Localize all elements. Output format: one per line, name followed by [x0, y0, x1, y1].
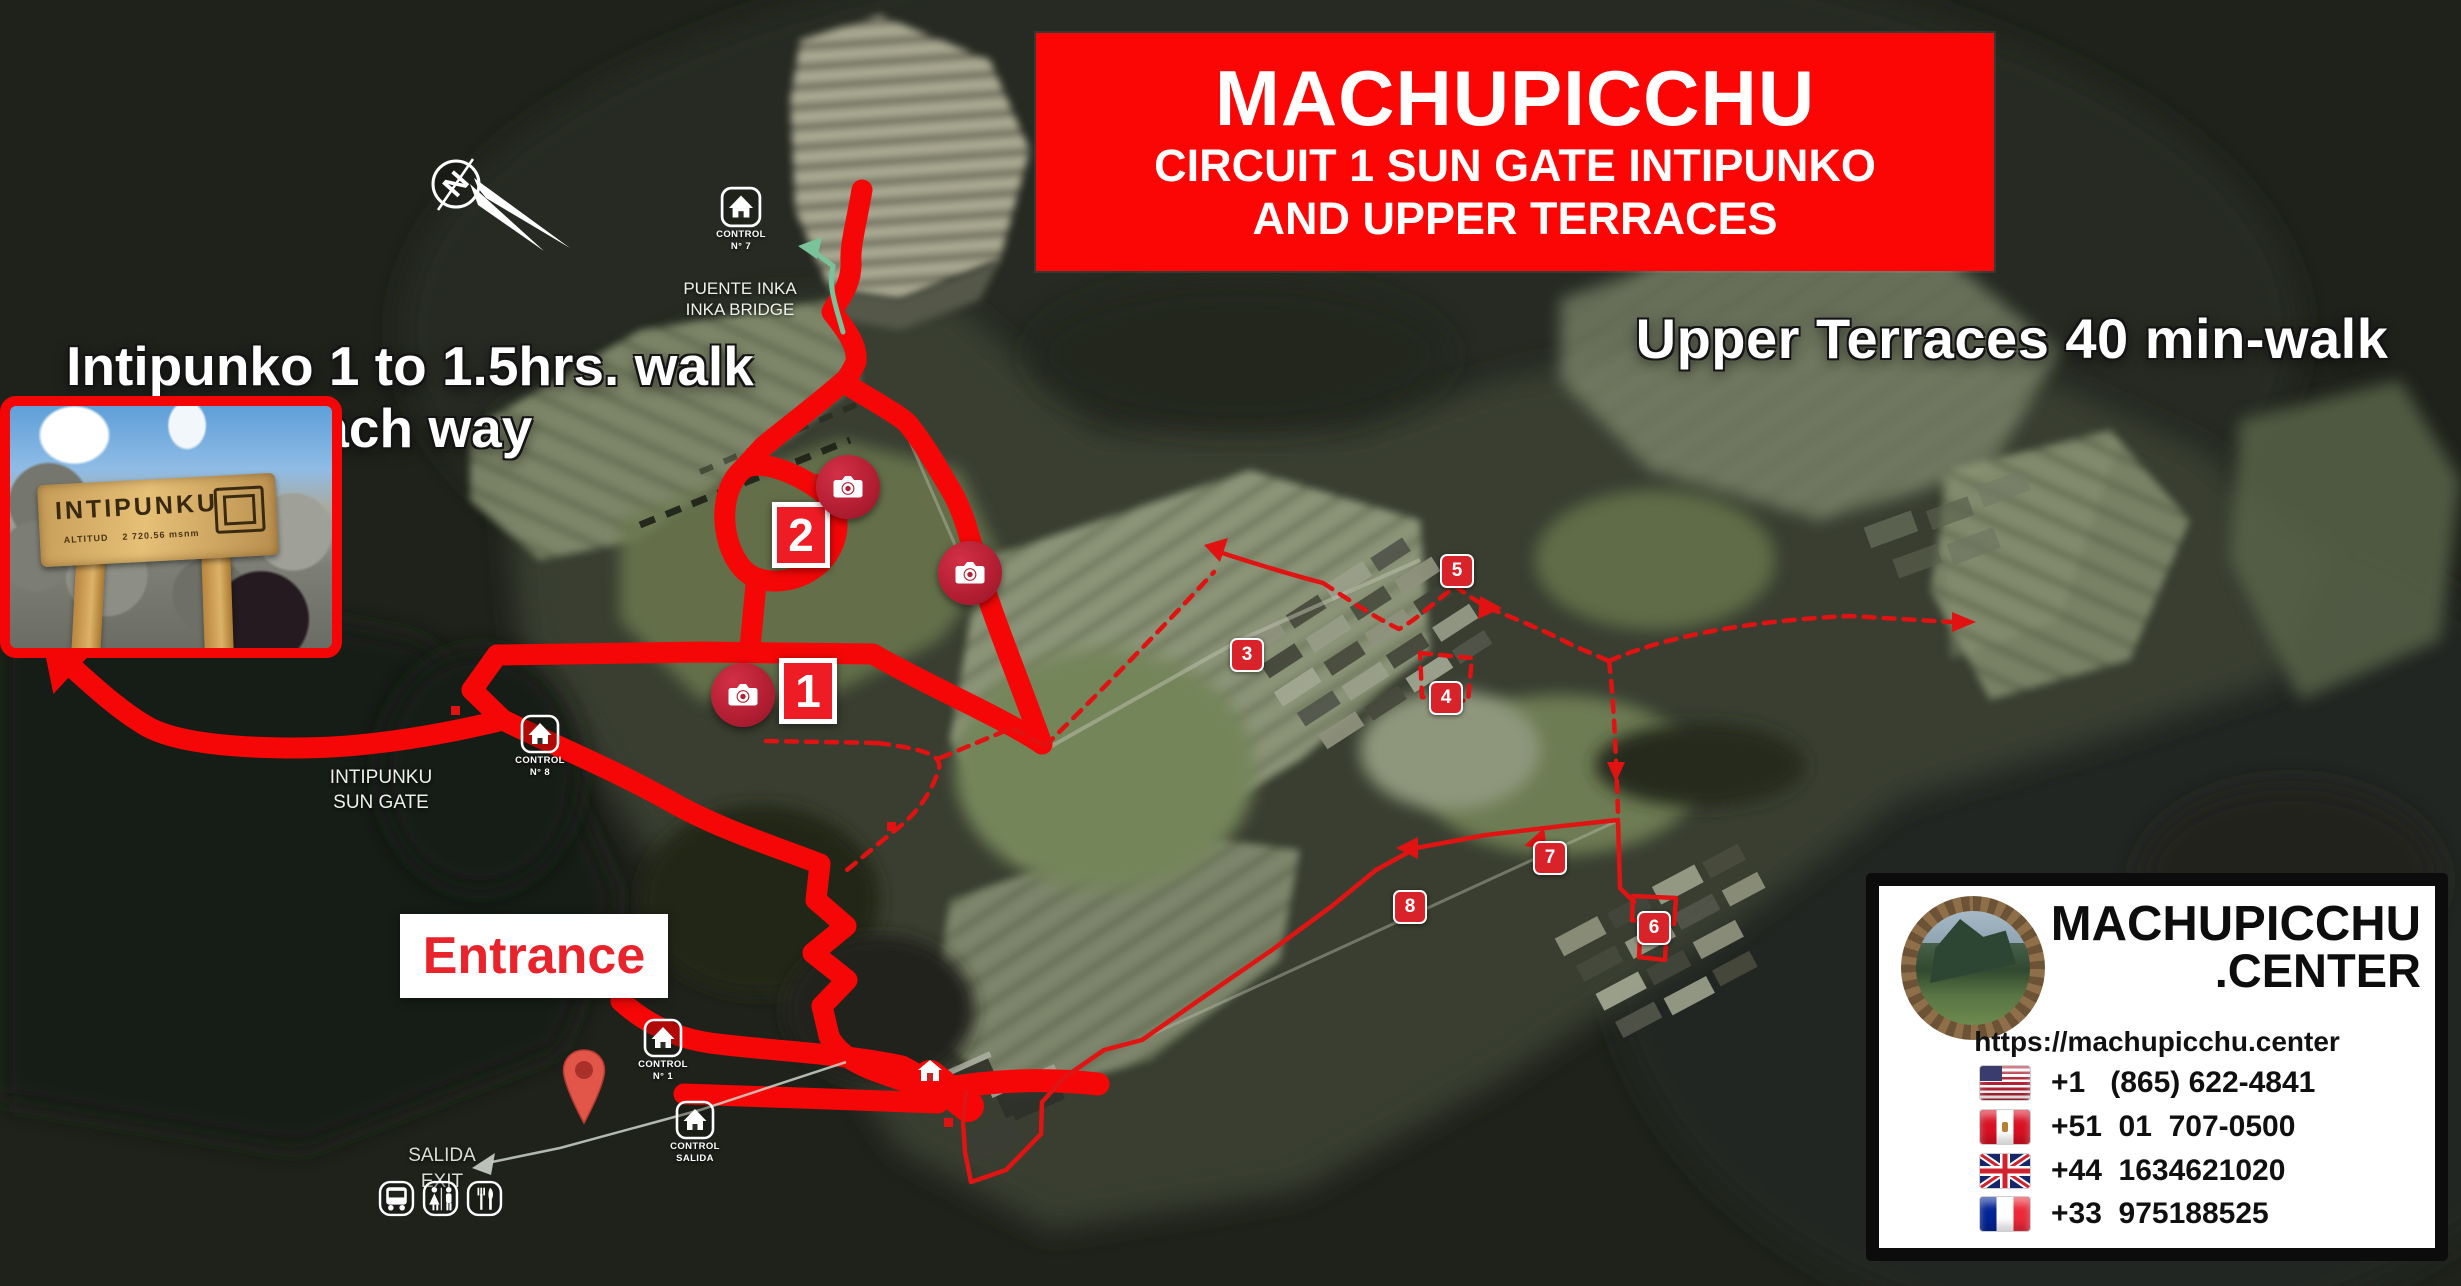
circuit-upper-entry	[1216, 551, 1323, 583]
control-label: CONTROL	[618, 1059, 708, 1071]
circuit-exit-loop	[963, 1040, 1142, 1182]
circuit-dashed-far-east	[1609, 616, 1952, 661]
circuit-dashed-descent	[842, 743, 939, 874]
phone-row-usa: +1 (865) 622-4841	[1979, 1063, 2315, 1103]
control-label: CONTROL	[696, 229, 786, 241]
bus-icon	[378, 1180, 415, 1217]
marker-number: 3	[1242, 644, 1253, 666]
circuit-marker-6: 6	[1637, 911, 1671, 945]
intipunku-wooden-sign: INTIPUNKU ALTITUD 2 720.56 msnm	[37, 472, 279, 567]
sign-post-right	[202, 553, 234, 651]
phone-number-usa: +1 (865) 622-4841	[2051, 1066, 2315, 1100]
inka-bridge-name-es: PUENTE INKA	[640, 278, 840, 299]
inka-bridge-label: PUENTE INKA INKA BRIDGE	[640, 278, 840, 321]
control-house-icon	[643, 1018, 683, 1058]
control-number: N° 7	[696, 241, 786, 253]
control-salida-exit: CONTROL SALIDA	[650, 1100, 740, 1165]
sun-gate-name-en: SUN GATE	[281, 791, 481, 816]
uk-flag-icon	[1979, 1153, 2031, 1189]
photo-stop-badge-1: 1	[779, 658, 837, 724]
badge-number: 1	[795, 664, 821, 718]
circuit-marker-3: 3	[1230, 638, 1264, 672]
entrance-pin-icon	[560, 1048, 608, 1126]
control-number: N° 1	[618, 1071, 708, 1083]
machupicchu-circuit-map: N Intipunko 1 to 1.5hrs. walk each way U…	[0, 0, 2461, 1286]
control-8-sun-gate: CONTROL N° 8	[495, 714, 585, 779]
control-house-icon	[675, 1100, 715, 1140]
route-loop-tail	[750, 584, 756, 648]
circuit-dashed-terrace-climb	[1045, 572, 1214, 746]
phone-number-uk: +44 1634621020	[2051, 1154, 2285, 1188]
phone-number-france: +33 975188525	[2051, 1197, 2269, 1231]
arrow-east	[1952, 612, 1976, 632]
france-flag-icon	[1979, 1196, 2031, 1232]
sign-caption: ALTITUD 2 720.56 msnm	[63, 527, 199, 544]
banner-subtitle-2: AND UPPER TERRACES	[1252, 192, 1777, 245]
phone-row-uk: +44 1634621020	[1979, 1151, 2285, 1191]
sign-caption-label: ALTITUD	[63, 532, 108, 544]
intipunko-walk-line1: Intipunko 1 to 1.5hrs. walk	[2, 336, 818, 398]
circuit-marker-7: 7	[1533, 841, 1567, 875]
control-number: SALIDA	[650, 1153, 740, 1165]
circuit-dashed-ruins-east	[1455, 586, 1609, 661]
banner-subtitle-1: CIRCUIT 1 SUN GATE INTIPUNKO	[1154, 139, 1876, 192]
marker-number: 8	[1405, 896, 1416, 918]
camera-viewpoint-icon	[938, 541, 1002, 605]
circuit-dashed-terrace-top	[766, 741, 878, 743]
arrow-mid	[1478, 596, 1502, 619]
control-house-icon	[720, 186, 762, 228]
entrance-label-text: Entrance	[423, 926, 646, 986]
phone-number-peru: +51 01 707-0500	[2051, 1110, 2295, 1144]
route-to-intipunku	[64, 660, 503, 748]
entrance-label: Entrance	[400, 914, 668, 998]
facilities-icons	[378, 1180, 503, 1217]
sun-gate-label: INTIPUNKU SUN GATE	[281, 766, 481, 815]
title-banner: MACHUPICCHU CIRCUIT 1 SUN GATE INTIPUNKO…	[1036, 33, 1994, 271]
control-house-icon	[520, 714, 560, 754]
marker-number: 4	[1441, 687, 1452, 709]
intipunku-photo-inset: INTIPUNKU ALTITUD 2 720.56 msnm	[0, 396, 342, 658]
machupicchu-center-logo	[1901, 896, 2045, 1040]
control-1-entrance: CONTROL N° 1	[618, 1018, 708, 1083]
sign-post-left	[72, 553, 106, 651]
camera-viewpoint-icon	[711, 663, 775, 727]
route-switchback	[472, 655, 503, 720]
brand-name-line2: .CENTER	[2051, 948, 2421, 994]
exit-label-es: SALIDA	[392, 1143, 492, 1169]
sun-gate-name-es: INTIPUNKU	[281, 766, 481, 791]
banner-title: MACHUPICCHU	[1215, 59, 1815, 139]
restaurant-icon	[466, 1180, 503, 1217]
brand-url: https://machupicchu.center	[1879, 1026, 2435, 1058]
peru-flag-icon	[1979, 1109, 2031, 1145]
phone-row-peru: +51 01 707-0500	[1979, 1107, 2295, 1147]
compass-north-icon: N	[420, 152, 585, 262]
restrooms-icon	[422, 1180, 459, 1217]
route-dot	[944, 1118, 953, 1127]
marker-number: 5	[1452, 560, 1463, 582]
control-label: CONTROL	[650, 1141, 740, 1153]
circuit-dashed-down	[1609, 661, 1618, 812]
badge-number: 2	[788, 508, 814, 562]
upper-terraces-note: Upper Terraces 40 min-walk	[1572, 306, 2452, 371]
inka-bridge-name-en: INKA BRIDGE	[640, 299, 840, 320]
sign-caption-value: 2 720.56 msnm	[122, 527, 199, 541]
sign-title: INTIPUNKU	[54, 489, 218, 526]
brand-card: MACHUPICCHU .CENTER https://machupicchu.…	[1866, 873, 2448, 1261]
brand-name-line1: MACHUPICCHU	[2051, 900, 2421, 948]
circuit-marker-8: 8	[1393, 890, 1427, 924]
arrow-entry	[1204, 538, 1228, 562]
brand-name: MACHUPICCHU .CENTER	[2051, 900, 2421, 994]
usa-flag-icon	[1979, 1065, 2031, 1101]
route-dot	[887, 822, 896, 831]
control-number: N° 8	[495, 767, 585, 779]
circuit-dashed-ruins-west	[1323, 583, 1455, 629]
phone-row-france: +33 975188525	[1979, 1194, 2269, 1234]
logo-mountain-image	[1916, 911, 2030, 1025]
marker-number: 7	[1545, 847, 1556, 869]
circuit-marker-4: 4	[1429, 681, 1463, 715]
photo-stop-badge-2: 2	[772, 502, 830, 568]
circuit-marker-5: 5	[1440, 554, 1474, 588]
route-dot	[451, 706, 460, 715]
sign-ruins-glyph	[214, 485, 266, 534]
control-label: CONTROL	[495, 755, 585, 767]
marker-number: 6	[1649, 917, 1660, 939]
camera-viewpoint-icon	[816, 455, 880, 519]
arrow-down	[1607, 762, 1625, 782]
control-7-inka-bridge: CONTROL N° 7	[696, 186, 786, 253]
